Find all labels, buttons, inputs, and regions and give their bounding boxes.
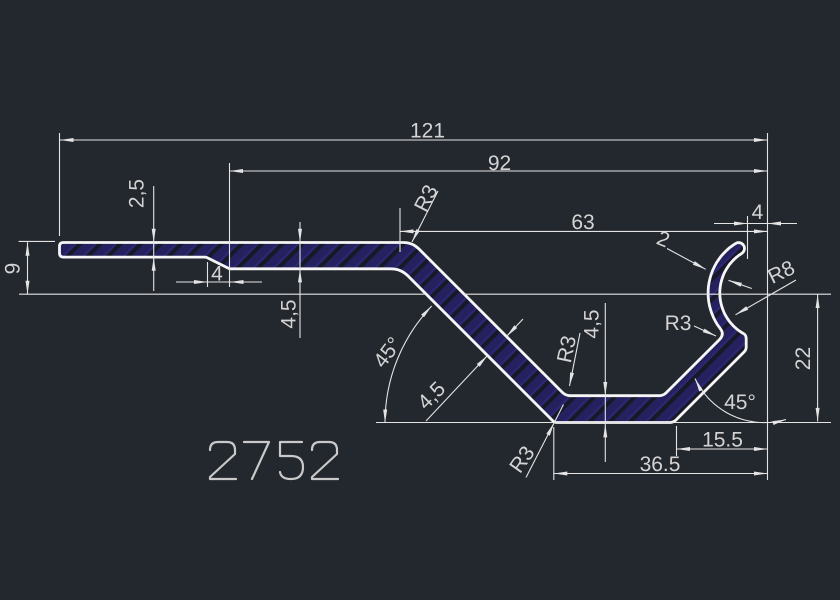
svg-text:4,5: 4,5: [278, 299, 301, 328]
svg-text:22: 22: [792, 347, 815, 370]
svg-text:2,5: 2,5: [126, 179, 149, 208]
svg-text:36.5: 36.5: [640, 453, 681, 476]
svg-text:92: 92: [488, 152, 511, 175]
svg-text:45°: 45°: [724, 391, 756, 414]
svg-text:63: 63: [571, 211, 594, 234]
svg-text:15.5: 15.5: [702, 429, 743, 452]
svg-text:4: 4: [211, 263, 223, 286]
svg-text:4,5: 4,5: [581, 309, 604, 338]
svg-text:9: 9: [2, 263, 25, 275]
svg-text:4: 4: [752, 201, 764, 224]
svg-text:R3: R3: [665, 312, 692, 335]
svg-text:121: 121: [410, 120, 445, 143]
